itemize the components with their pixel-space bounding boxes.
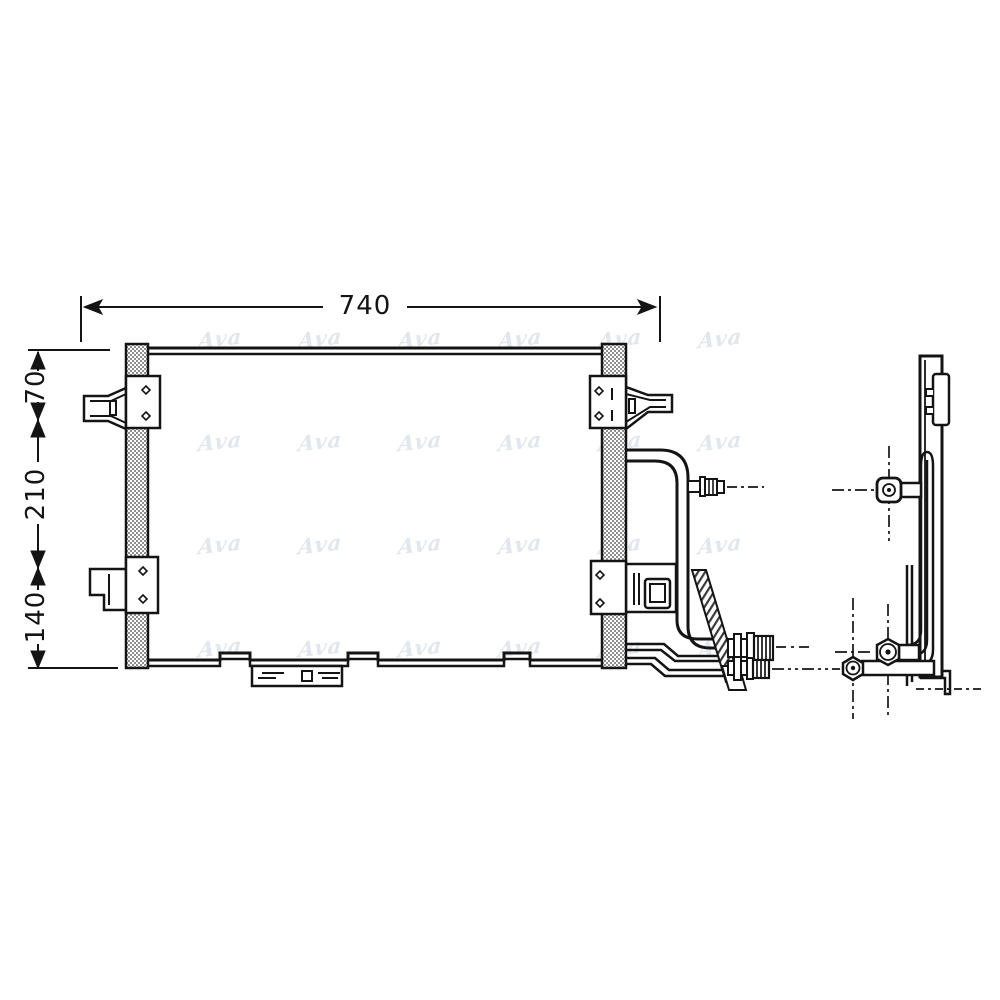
bracket-top-right: [590, 376, 672, 429]
condenser-front-view: [126, 344, 626, 686]
condenser-technical-drawing: AvaAvaAvaAvaAvaAvaAvaAvaAvaAvaAvaAvaAvaA…: [0, 0, 1000, 1000]
bracket-top-left: [84, 376, 160, 429]
service-valve: [688, 477, 724, 496]
bracket-slot: [629, 399, 635, 413]
bottom-mount-box: [252, 666, 342, 686]
bracket-bottom-right: [591, 561, 676, 614]
arrowhead-up-icon: [31, 420, 45, 437]
dimension-segment-label-140: 140: [21, 575, 51, 659]
bracket-plate: [126, 376, 160, 428]
dimension-width-label: 740: [323, 291, 407, 321]
bracket-plate: [590, 376, 626, 428]
drawing-linework: [0, 0, 1000, 1000]
condenser-side-view: [907, 356, 949, 686]
bracket-plate: [126, 557, 158, 613]
bracket-plate: [591, 561, 626, 614]
hex-stem: [899, 645, 919, 660]
arrowhead-down-icon: [31, 551, 45, 568]
threaded-connectors: [728, 633, 773, 680]
dimension-segment-label-210: 210: [21, 452, 51, 536]
bracket-slot: [110, 401, 116, 415]
bracket-tab: [84, 388, 126, 429]
bracket-bottom-left: [90, 557, 158, 613]
dimension-segment-label-70: 70: [21, 354, 51, 420]
connector-lower: [728, 657, 769, 680]
side-top-tab: [933, 374, 949, 425]
hex-stem-long: [862, 661, 934, 675]
